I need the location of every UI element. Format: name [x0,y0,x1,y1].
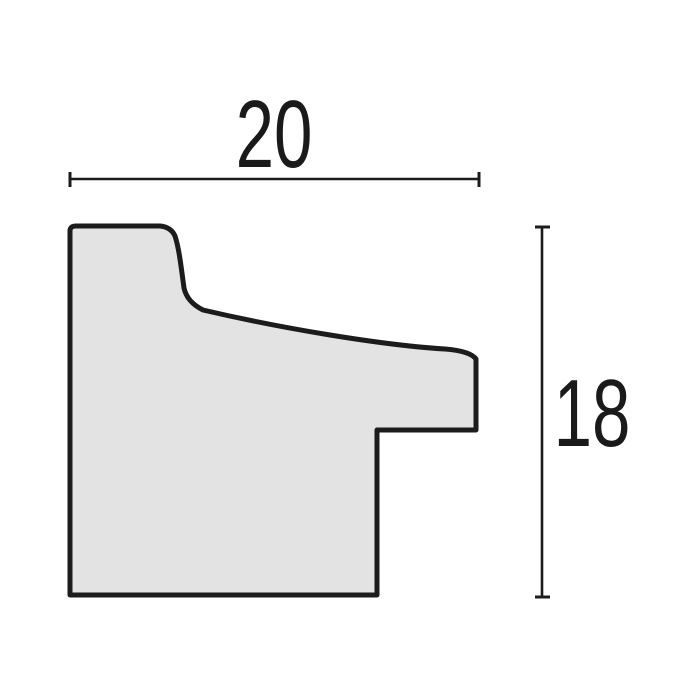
profile-diagram-canvas: 20 18 [0,0,700,700]
height-dimension: 18 [535,227,630,597]
width-dimension-label: 20 [236,80,313,188]
technical-drawing: 20 18 [0,0,700,700]
height-dimension-label: 18 [554,359,631,467]
width-dimension: 20 [70,80,479,188]
profile-shape [70,226,476,595]
